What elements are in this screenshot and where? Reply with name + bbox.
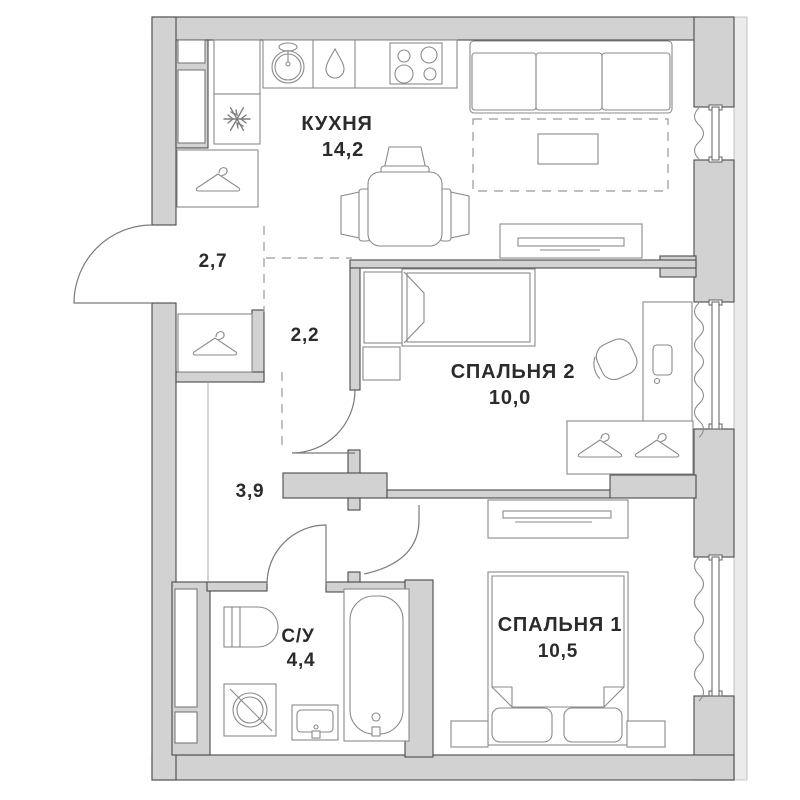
niche-top-tall	[178, 70, 205, 143]
wall-right-top	[694, 17, 734, 107]
single-bed	[364, 269, 535, 346]
facade-band	[734, 17, 747, 780]
wall-bathroom-north-left	[207, 582, 267, 591]
bedroom2-label: СПАЛЬНЯ 2	[451, 361, 576, 383]
window-bedroom2	[712, 302, 719, 429]
niche-shaft-tall	[175, 589, 197, 707]
bathroom-furniture	[224, 589, 409, 741]
hall-closet-bottom	[178, 314, 252, 372]
dining-table	[368, 172, 442, 246]
tv-stand	[500, 224, 642, 258]
wall-bedroom1-north-thick	[610, 475, 696, 498]
hallway-area: 2,7	[199, 251, 228, 272]
stove-icon	[390, 43, 442, 84]
bedroom1-area: 10,5	[538, 641, 578, 662]
window-kitchen	[712, 107, 719, 160]
floor-plan-canvas: КУХНЯ 14,2 2,7 2,2 СПАЛЬНЯ 2 10,0 3,9 С/…	[0, 0, 800, 800]
desk	[643, 302, 692, 422]
toilet	[224, 607, 278, 647]
bedroom2-door	[292, 390, 355, 453]
curtain-wave-icon	[695, 557, 704, 701]
wash-basin	[292, 705, 338, 740]
wall-top	[152, 17, 697, 40]
monitor	[653, 345, 672, 375]
wall-stub-bathroom	[348, 572, 360, 582]
wall-closet-right	[252, 310, 264, 382]
nightstand	[451, 721, 488, 747]
wall-bedroom1-north-thin	[387, 490, 612, 498]
washing-machine-icon	[224, 684, 276, 736]
pillow	[492, 708, 552, 742]
entrance-door	[74, 225, 152, 303]
sofa	[470, 41, 672, 113]
bathroom-area: 4,4	[287, 650, 316, 671]
desk-chair	[587, 335, 642, 387]
kitchen-area: 14,2	[322, 139, 364, 161]
kitchen-label: КУХНЯ	[301, 113, 372, 135]
bedroom1-door	[364, 505, 419, 574]
niche-top-small	[178, 40, 205, 63]
tv	[503, 511, 611, 518]
bathroom-door	[267, 525, 326, 585]
nightstand	[627, 721, 665, 747]
niche-shaft-small	[175, 712, 197, 743]
curtain-wave-icon	[695, 108, 704, 159]
tv	[518, 238, 624, 246]
wall-right-mid2	[694, 429, 734, 557]
bathroom-label: С/У	[281, 626, 314, 647]
wall-closet-bottom	[176, 372, 264, 382]
wall-stub-corridor	[348, 498, 360, 510]
bedroom1-label: СПАЛЬНЯ 1	[498, 614, 623, 636]
corridor-upper-area: 2,2	[291, 325, 320, 346]
wall-bedroom2-west	[350, 268, 360, 390]
nightstand	[363, 347, 400, 380]
fridge	[214, 94, 260, 144]
wall-stub-door2	[348, 450, 360, 475]
wall-bottom	[152, 755, 734, 780]
wardrobe	[567, 421, 693, 474]
corridor-lower-area: 3,9	[236, 481, 265, 502]
pillow	[564, 708, 622, 742]
bathtub	[344, 589, 409, 741]
wall-mid-block	[283, 473, 387, 498]
bedroom2-area: 10,0	[489, 387, 531, 409]
kitchen-table-set	[341, 147, 469, 246]
curtain-wave-icon	[695, 303, 704, 437]
hall-closet-top	[177, 150, 258, 207]
wall-left-top	[152, 17, 176, 225]
wall-right-mid1	[694, 160, 734, 302]
coffee-table	[538, 134, 598, 164]
dresser-tv	[488, 500, 628, 538]
living-furniture	[470, 41, 672, 258]
window-bedroom1	[712, 557, 719, 696]
floor-plan-svg: КУХНЯ 14,2 2,7 2,2 СПАЛЬНЯ 2 10,0 3,9 С/…	[0, 0, 800, 800]
wall-bedroom2-north	[350, 260, 696, 268]
kitchen-cabinet	[214, 40, 260, 94]
